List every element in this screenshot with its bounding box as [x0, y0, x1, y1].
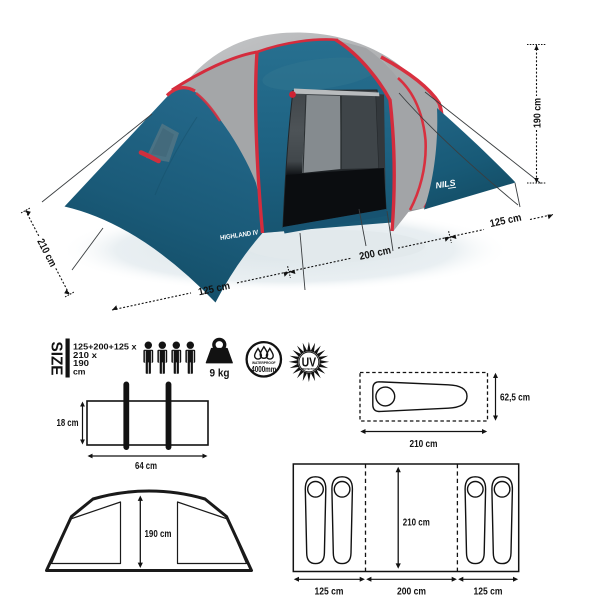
svg-text:125 cm: 125 cm — [474, 586, 503, 598]
svg-text:210 cm: 210 cm — [410, 438, 438, 450]
svg-text:SIZE: SIZE — [48, 342, 65, 376]
svg-text:210 cm: 210 cm — [403, 517, 430, 529]
svg-text:cm: cm — [73, 366, 86, 376]
svg-text:18 cm: 18 cm — [57, 417, 79, 429]
svg-text:190 cm: 190 cm — [532, 98, 544, 128]
svg-text:4000mm: 4000mm — [251, 365, 276, 374]
svg-text:9 kg: 9 kg — [210, 368, 230, 380]
svg-text:190 cm: 190 cm — [145, 528, 172, 540]
svg-text:125 cm: 125 cm — [315, 586, 344, 598]
svg-text:PROTECTION: PROTECTION — [301, 367, 316, 371]
svg-text:200 cm: 200 cm — [397, 586, 426, 598]
svg-text:62,5 cm: 62,5 cm — [500, 392, 530, 404]
svg-text:64 cm: 64 cm — [135, 460, 157, 472]
